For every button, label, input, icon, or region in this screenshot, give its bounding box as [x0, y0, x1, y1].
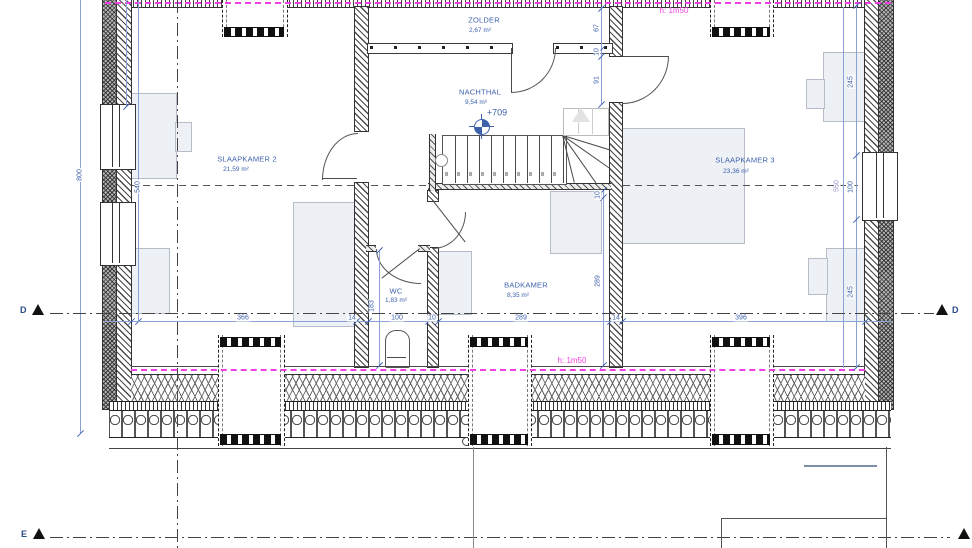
stair-tick-row	[445, 172, 563, 176]
dormer-bottom	[710, 335, 774, 446]
room-area-zolder: 2,67 m²	[469, 28, 491, 35]
floor-plan: h: 1m50 h: 1m50 ZOLDER 2,67 m² NACHTHAL …	[0, 0, 972, 548]
door-arc-zolder	[511, 48, 556, 93]
dormer-cap	[220, 337, 281, 347]
dim-label-wc: 183	[369, 299, 376, 313]
dormer-cap	[712, 27, 770, 37]
room-label-slaapkamer3: SLAAPKAMER 3	[715, 156, 775, 164]
room-label-slaapkamer2: SLAAPKAMER 2	[217, 155, 277, 163]
dim-line	[105, 321, 891, 322]
door-arc-wc	[376, 249, 421, 284]
side-table	[806, 79, 825, 109]
dim-line	[379, 250, 380, 366]
benchmark-icon	[474, 119, 490, 135]
dormer-cap	[712, 337, 770, 347]
wall-interior	[355, 183, 368, 367]
side-table	[808, 258, 828, 295]
window-frame	[112, 105, 120, 167]
dim-line	[603, 190, 604, 366]
dormer-cap	[712, 434, 770, 445]
room-area-nachthal: 9,54 m²	[465, 100, 487, 107]
dormer-cap	[220, 434, 281, 445]
dim-label: 289	[514, 315, 528, 322]
bed	[293, 202, 355, 327]
door-arc-slaapkamer2	[322, 133, 358, 180]
stair-upper-line	[592, 108, 593, 134]
door-leaf	[511, 48, 512, 92]
dim-label: 396	[734, 315, 748, 322]
section-marker-d-right	[936, 304, 948, 315]
wall-interior	[355, 7, 368, 131]
bed	[622, 128, 745, 244]
section-marker-e-right	[958, 528, 970, 539]
section-marker-e-left	[33, 528, 45, 539]
door-leaf	[322, 178, 357, 179]
wall-left-inner	[117, 0, 131, 401]
staircase	[442, 135, 567, 185]
window	[100, 104, 136, 170]
mullions	[370, 46, 510, 49]
dresser	[131, 248, 170, 314]
dim-label: 10	[594, 47, 601, 57]
dim-tick	[598, 101, 605, 108]
dim-label: 14	[611, 315, 621, 322]
dormer-cap	[224, 27, 284, 37]
dim-label: 10	[595, 190, 602, 200]
height-label-bottom: h: 1m50	[558, 357, 587, 365]
dim-line	[138, 0, 139, 321]
section-label-d-right: D	[952, 306, 959, 315]
room-area-slaapkamer3: 23,36 m²	[723, 169, 749, 176]
shower	[436, 251, 472, 315]
wall-wc-north	[366, 245, 376, 252]
section-label-e-left: E	[21, 530, 27, 539]
window	[862, 152, 898, 221]
dim-label: 100	[848, 180, 855, 194]
dim-line	[126, 0, 127, 106]
site-line	[473, 447, 474, 548]
dim-label: 100	[390, 315, 404, 322]
room-label-zolder: ZOLDER	[468, 16, 500, 24]
wall-interior	[610, 103, 622, 367]
toilet	[385, 330, 410, 368]
dormer-cap	[470, 337, 528, 347]
section-label-d-left: D	[20, 306, 27, 315]
toilet-seat-line	[387, 357, 406, 358]
dresser	[823, 52, 867, 122]
stair-start-post	[435, 154, 448, 167]
room-area-slaapkamer2: 21,59 m²	[223, 167, 249, 174]
door-arc-badkamer	[433, 212, 466, 249]
centerline	[177, 0, 178, 548]
dim-label-left-total: 800	[77, 168, 84, 182]
vanity	[550, 191, 602, 254]
dormer-inner	[222, 335, 281, 446]
room-label-badkamer: BADKAMER	[504, 281, 548, 289]
dim-label: 14	[347, 315, 357, 322]
terrace-outline	[721, 518, 887, 548]
door-arc-slaapkamer3	[622, 56, 669, 104]
window-frame	[112, 203, 120, 263]
height-label-top: h: 1m50	[660, 7, 689, 15]
room-label-wc: WC	[390, 287, 403, 295]
dormer-inner	[472, 335, 528, 446]
room-area-badkamer: 8,35 m²	[507, 293, 529, 300]
height-line-top	[105, 2, 891, 4]
window-band	[367, 43, 513, 54]
dormer-inner	[714, 335, 770, 446]
window	[100, 202, 136, 266]
dim-label: 289	[595, 274, 602, 288]
dim-label-left-room: 540	[135, 180, 142, 194]
dim-label: 67	[594, 23, 601, 33]
dim-label: 366	[236, 315, 250, 322]
wall-interior	[428, 248, 438, 367]
dim-label: 245	[848, 285, 855, 299]
dim-label: 91	[594, 75, 601, 85]
window-frame	[876, 153, 884, 218]
level-label: +709	[487, 109, 507, 118]
dim-label-right-total: 550	[834, 179, 841, 193]
dim-label: 10	[427, 315, 437, 322]
room-label-nachthal: NACHTHAL	[459, 88, 501, 96]
stair-direction-arrow	[572, 108, 590, 122]
dormer-bottom	[468, 335, 532, 446]
dormer-cap	[470, 434, 528, 445]
stair-winder	[563, 135, 611, 151]
dim-line	[80, 0, 81, 433]
door-leaf	[622, 56, 668, 57]
room-area-wc: 1,83 m²	[385, 298, 407, 305]
section-line-d	[50, 313, 934, 314]
dormer-bottom	[218, 335, 285, 446]
dim-tick	[77, 430, 84, 437]
dim-label: 245	[848, 75, 855, 89]
height-line-bottom	[131, 369, 865, 371]
section-marker-d-left	[32, 304, 44, 315]
facade-accent-line	[804, 465, 877, 467]
